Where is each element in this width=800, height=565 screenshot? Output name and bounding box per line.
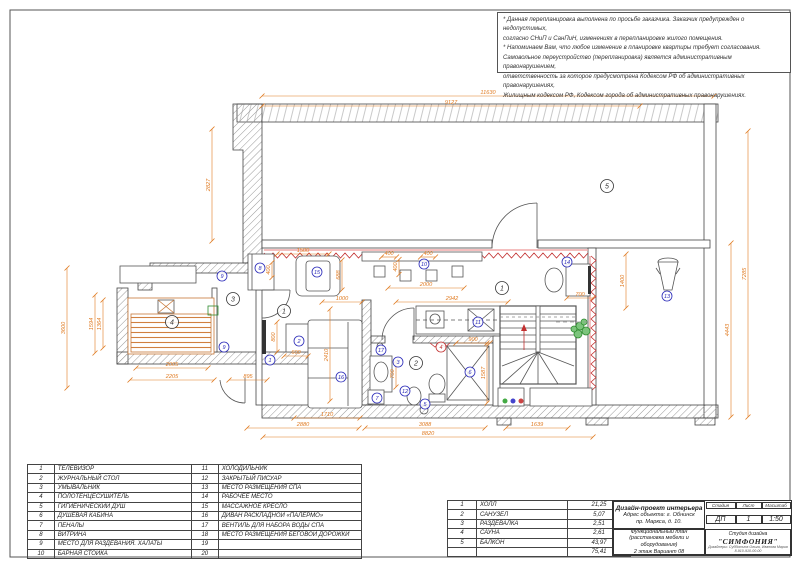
room-marker: 4 bbox=[166, 316, 179, 329]
svg-text:1500: 1500 bbox=[297, 248, 310, 254]
title-block-studio: Студия дизайна "СИМФОНИЯ" Дизайнеры: Суб… bbox=[705, 529, 791, 555]
legend-cell: ГИГИЕНИЧЕСКИЙ ДУШ bbox=[54, 502, 191, 511]
drawing-sheet: 1163091272827360015941364200522058954001… bbox=[0, 0, 800, 565]
wall-hall-balcony-1 bbox=[262, 240, 492, 248]
legend-cell: 12 bbox=[191, 474, 218, 483]
svg-text:2: 2 bbox=[413, 361, 418, 368]
bar-stool bbox=[400, 270, 411, 281]
room-cell: 3 bbox=[448, 519, 477, 528]
svg-text:1: 1 bbox=[268, 358, 271, 364]
note-line: Жилищным кодексом РФ, Кодексом города об… bbox=[503, 92, 785, 101]
dimension: 1639 bbox=[504, 422, 571, 430]
legend-cell: МЕСТО ДЛЯ РАЗДЕВАНИЯ. ХАЛАТЫ bbox=[54, 540, 191, 549]
svg-text:1710: 1710 bbox=[321, 412, 334, 418]
room-cell: 5 bbox=[448, 538, 477, 547]
svg-text:3600: 3600 bbox=[61, 321, 67, 334]
room-row: 2САНУЗЕЛ5,07 bbox=[448, 510, 631, 519]
legend-cell: ПЕНАЛЫ bbox=[54, 521, 191, 530]
legend-row: 7ПЕНАЛЫ17ВЕНТИЛЬ ДЛЯ НАБОРА ВОДЫ СПА bbox=[28, 521, 362, 530]
legend-cell: ДУШЕВАЯ КАБИНА bbox=[54, 511, 191, 520]
svg-text:2000: 2000 bbox=[419, 282, 433, 288]
wall-tab bbox=[695, 418, 715, 425]
dimension: 2942 bbox=[394, 296, 511, 304]
room-marker: 2 bbox=[410, 357, 423, 370]
svg-text:700: 700 bbox=[390, 368, 396, 378]
item-marker: 10 bbox=[419, 259, 429, 269]
svg-text:1364: 1364 bbox=[97, 318, 103, 330]
washbasin-unit bbox=[370, 356, 392, 392]
item-marker: 17 bbox=[376, 345, 386, 355]
svg-text:1587: 1587 bbox=[481, 366, 487, 379]
project-address-2: пр. Маркса, д. 10. bbox=[636, 519, 682, 526]
legend-cell: МЕСТО РАЗМЕЩЕНИЯ СПА bbox=[218, 483, 361, 492]
svg-text:3: 3 bbox=[231, 297, 235, 304]
svg-text:4: 4 bbox=[439, 345, 442, 351]
legend-cell: 2 bbox=[28, 474, 55, 483]
room-cell: 2 bbox=[448, 510, 477, 519]
bar-stool bbox=[426, 270, 437, 281]
item-marker: 16 bbox=[336, 372, 346, 382]
room-cell: БАЛКОН bbox=[477, 538, 568, 547]
svg-text:12: 12 bbox=[402, 389, 408, 395]
item-marker: 2 bbox=[294, 336, 304, 346]
wall-bath-top-1 bbox=[371, 336, 385, 343]
legend-cell: 11 bbox=[191, 465, 218, 474]
wall-tab bbox=[586, 418, 608, 425]
room-cell: САНУЗЕЛ bbox=[477, 510, 568, 519]
plan-name-3: 2 этаж Вариант 08 bbox=[634, 549, 684, 555]
legend-cell: УМЫВАЛЬНИК bbox=[54, 483, 191, 492]
stage-label: Стадия bbox=[706, 502, 736, 509]
svg-text:4443: 4443 bbox=[725, 323, 731, 336]
item-marker: 8 bbox=[255, 263, 265, 273]
svg-text:15: 15 bbox=[314, 270, 321, 276]
equipment-box bbox=[530, 388, 592, 406]
legend-cell bbox=[218, 540, 361, 549]
legend-table: 1ТЕЛЕВИЗОР11ХОЛОДИЛЬНИК2ЖУРНАЛЬНЫЙ СТОЛ1… bbox=[27, 464, 362, 559]
wall-hall-left bbox=[256, 290, 262, 405]
item-marker: 12 bbox=[400, 386, 410, 396]
legend-cell: 6 bbox=[28, 511, 55, 520]
legend-cell: 1 bbox=[28, 465, 55, 474]
svg-text:600: 600 bbox=[291, 350, 301, 356]
sofa bbox=[308, 320, 362, 408]
stage-value: ДП bbox=[706, 515, 736, 524]
dimension: 2827 bbox=[206, 127, 214, 244]
svg-text:400: 400 bbox=[423, 251, 433, 257]
legend-cell: ВИТРИНА bbox=[54, 530, 191, 539]
svg-text:2880: 2880 bbox=[296, 422, 310, 428]
svg-text:5: 5 bbox=[605, 184, 609, 191]
desk bbox=[566, 264, 590, 296]
legend-cell: ЖУРНАЛЬНЫЙ СТОЛ bbox=[54, 474, 191, 483]
dimension: 4443 bbox=[725, 241, 733, 420]
item-marker-red: 4 bbox=[436, 342, 446, 352]
svg-text:700: 700 bbox=[575, 292, 585, 298]
svg-text:4: 4 bbox=[170, 320, 174, 327]
svg-text:1594: 1594 bbox=[89, 318, 95, 330]
wall-left-pier bbox=[233, 104, 262, 263]
legend-cell: ХОЛОДИЛЬНИК bbox=[218, 465, 361, 474]
dimension: 8820 bbox=[261, 431, 596, 439]
legend-cell: БАРНАЯ СТОЙКА bbox=[54, 549, 191, 558]
tv bbox=[262, 320, 266, 354]
svg-text:16: 16 bbox=[338, 375, 345, 381]
plan-name-2: (расстановка мебели и оборудования) bbox=[614, 535, 704, 549]
svg-text:3088: 3088 bbox=[419, 422, 432, 428]
office-chair bbox=[545, 268, 563, 292]
legend-cell: 18 bbox=[191, 530, 218, 539]
item-marker: 13 bbox=[662, 291, 672, 301]
legend-row: 6ДУШЕВАЯ КАБИНА16ДИВАН РАСКЛАДНОЙ «ПАЛЕР… bbox=[28, 511, 362, 520]
title-block-plan-name: Функциональный план (расстановка мебели … bbox=[613, 529, 705, 555]
spa-vessel bbox=[656, 258, 680, 290]
note-line: ответственность за которое предусмотрена… bbox=[503, 73, 785, 92]
legend-cell: 16 bbox=[191, 511, 218, 520]
bar-stool bbox=[452, 266, 463, 277]
room-marker: 3 bbox=[227, 293, 240, 306]
title-block: Дизайн-проект интерьера Адрес объекта: г… bbox=[612, 500, 792, 556]
room-row: 4САУНА2,61 bbox=[448, 529, 631, 538]
legend-cell: ПОЛОТЕНЦЕСУШИТЕЛЬ bbox=[54, 493, 191, 502]
legend-cell: 5 bbox=[28, 502, 55, 511]
legend-cell: 10 bbox=[28, 549, 55, 558]
svg-text:900: 900 bbox=[468, 337, 478, 343]
svg-text:2942: 2942 bbox=[445, 296, 459, 302]
room-row: 1ХОЛЛ21,25 bbox=[448, 501, 631, 510]
item-marker: 3 bbox=[393, 357, 403, 367]
svg-text:10: 10 bbox=[421, 262, 428, 268]
legend-cell: ДИВАН РАСКЛАДНОЙ «ПАЛЕРМО» bbox=[218, 511, 361, 520]
wall-tab bbox=[497, 418, 511, 425]
svg-text:688: 688 bbox=[336, 269, 342, 279]
svg-text:9: 9 bbox=[220, 274, 223, 280]
svg-text:800: 800 bbox=[271, 331, 277, 341]
svg-text:1: 1 bbox=[500, 286, 504, 293]
item-marker: 6 bbox=[465, 367, 475, 377]
legend-cell: ТЕЛЕВИЗОР bbox=[54, 465, 191, 474]
legend-cell: 9 bbox=[28, 540, 55, 549]
dimension: 1400 bbox=[620, 252, 628, 311]
toilet bbox=[429, 374, 445, 394]
sheet-label: Лист bbox=[736, 502, 762, 509]
note-line: согласно СНиП и СанПиН, изменениях в пер… bbox=[503, 35, 785, 44]
legend-cell: РАБОЧЕЕ МЕСТО bbox=[218, 493, 361, 502]
item-marker: 11 bbox=[473, 317, 483, 327]
svg-text:1400: 1400 bbox=[620, 274, 626, 287]
project-address-1: Адрес объекта: г. Обнинск bbox=[623, 512, 695, 519]
room-cell bbox=[477, 547, 568, 556]
dimension: 3088 bbox=[363, 422, 488, 430]
legend-cell: 4 bbox=[28, 493, 55, 502]
item-marker: 9 bbox=[217, 271, 227, 281]
dimension: 2880 bbox=[245, 422, 362, 430]
svg-text:7285: 7285 bbox=[742, 267, 748, 280]
legend-row: 2ЖУРНАЛЬНЫЙ СТОЛ12ЗАКРЫТЫЙ ПИСУАР bbox=[28, 474, 362, 483]
rooms-table: 1ХОЛЛ21,252САНУЗЕЛ5,073РАЗДЕВАЛКА2,514СА… bbox=[447, 500, 631, 557]
svg-text:13: 13 bbox=[664, 294, 671, 300]
svg-text:11630: 11630 bbox=[480, 90, 496, 96]
room-row: 5БАЛКОН43,97 bbox=[448, 538, 631, 547]
room-cell bbox=[448, 547, 477, 556]
title-block-project: Дизайн-проект интерьера Адрес объекта: г… bbox=[613, 501, 705, 529]
legend-cell: 14 bbox=[191, 493, 218, 502]
room-cell: 4 bbox=[448, 529, 477, 538]
wall-top bbox=[237, 104, 718, 122]
notes-text: * Данная перепланировка выполнена по про… bbox=[503, 16, 785, 101]
dimension: 2205 bbox=[128, 374, 217, 382]
room-cell: ХОЛЛ bbox=[477, 501, 568, 510]
legend-row: 4ПОЛОТЕНЦЕСУШИТЕЛЬ14РАБОЧЕЕ МЕСТО bbox=[28, 493, 362, 502]
note-line: * Напоминаем Вам, что любое изменение в … bbox=[503, 44, 785, 53]
legend-row: 8ВИТРИНА18МЕСТО РАЗМЕЩЕНИЯ БЕГОВОЙ ДОРОЖ… bbox=[28, 530, 362, 539]
room-cell: РАЗДЕВАЛКА bbox=[477, 519, 568, 528]
room-marker: 1 bbox=[496, 282, 509, 295]
legend-cell: 15 bbox=[191, 502, 218, 511]
item-marker: 15 bbox=[312, 267, 322, 277]
walls-layer bbox=[117, 104, 718, 425]
legend-cell: 13 bbox=[191, 483, 218, 492]
legend-cell: 17 bbox=[191, 521, 218, 530]
wall-right bbox=[704, 104, 716, 418]
note-line: Самовольное переустройство (перепланиров… bbox=[503, 54, 785, 73]
svg-text:17: 17 bbox=[378, 348, 385, 354]
wall-bath-top-2 bbox=[413, 336, 495, 343]
scale-value: 1:50 bbox=[762, 515, 791, 524]
studio-phone: 8-910-910-00-00 bbox=[735, 550, 762, 554]
svg-text:9127: 9127 bbox=[445, 100, 458, 106]
legend-cell bbox=[218, 549, 361, 558]
legend-cell: ЗАКРЫТЫЙ ПИСУАР bbox=[218, 474, 361, 483]
razd-shelf bbox=[120, 266, 196, 283]
svg-text:8820: 8820 bbox=[422, 431, 435, 437]
counter-block bbox=[416, 306, 504, 334]
svg-text:1000: 1000 bbox=[336, 296, 349, 302]
svg-text:11: 11 bbox=[475, 320, 481, 326]
sheet-value: 1 bbox=[736, 515, 762, 524]
dimension: 7285 bbox=[742, 129, 750, 420]
legend-row: 3УМЫВАЛЬНИК13МЕСТО РАЗМЕЩЕНИЯ СПА bbox=[28, 483, 362, 492]
room-marker: 5 bbox=[601, 180, 614, 193]
legend-cell: МАССАЖНОЕ КРЕСЛО bbox=[218, 502, 361, 511]
item-marker: 1 bbox=[265, 355, 275, 365]
title-block-stage-grid: Стадия Лист Масштаб ДП 1 1:50 bbox=[705, 501, 791, 529]
svg-text:2410: 2410 bbox=[324, 348, 330, 362]
scale-label: Масштаб bbox=[762, 502, 791, 509]
bar-stool bbox=[374, 266, 385, 277]
legend-row: 5ГИГИЕНИЧЕСКИЙ ДУШ15МАССАЖНОЕ КРЕСЛО bbox=[28, 502, 362, 511]
dimension: 1000 bbox=[320, 296, 365, 304]
dimension: 800 bbox=[271, 320, 279, 355]
room-marker: 1 bbox=[278, 305, 291, 318]
item-marker: 14 bbox=[562, 257, 572, 267]
legend-cell: ВЕНТИЛЬ ДЛЯ НАБОРА ВОДЫ СПА bbox=[218, 521, 361, 530]
staircase bbox=[500, 306, 576, 384]
dimension: 1364 bbox=[97, 298, 105, 351]
svg-text:1639: 1639 bbox=[531, 422, 543, 428]
svg-text:2005: 2005 bbox=[165, 362, 179, 368]
item-marker: 5 bbox=[420, 399, 430, 409]
svg-text:400: 400 bbox=[393, 261, 399, 271]
svg-text:400: 400 bbox=[266, 264, 272, 274]
room-row: 3РАЗДЕВАЛКА2,51 bbox=[448, 519, 631, 528]
svg-text:9: 9 bbox=[222, 345, 225, 351]
notes-box: * Данная перепланировка выполнена по про… bbox=[497, 12, 791, 73]
legend-cell: 8 bbox=[28, 530, 55, 539]
legend-row: 10БАРНАЯ СТОЙКА20 bbox=[28, 549, 362, 558]
legend-cell: МЕСТО РАЗМЕЩЕНИЯ БЕГОВОЙ ДОРОЖКИ bbox=[218, 530, 361, 539]
project-title: Дизайн-проект интерьера bbox=[616, 505, 703, 512]
item-marker: 9 bbox=[219, 342, 229, 352]
legend-cell: 7 bbox=[28, 521, 55, 530]
svg-text:2827: 2827 bbox=[206, 178, 212, 192]
svg-text:2: 2 bbox=[296, 339, 300, 345]
dimension: 3600 bbox=[61, 266, 69, 391]
wall-hall-balcony-2 bbox=[538, 240, 710, 248]
room-row: 75,41 bbox=[448, 547, 631, 556]
legend-row: 1ТЕЛЕВИЗОР11ХОЛОДИЛЬНИК bbox=[28, 465, 362, 474]
room-cell: САУНА bbox=[477, 529, 568, 538]
legend-cell: 3 bbox=[28, 483, 55, 492]
legend-cell: 20 bbox=[191, 549, 218, 558]
svg-text:400: 400 bbox=[384, 251, 394, 257]
dimension: 2000 bbox=[386, 282, 467, 290]
monitor bbox=[588, 266, 591, 294]
room-cell: 1 bbox=[448, 501, 477, 510]
item-marker: 7 bbox=[372, 393, 382, 403]
legend-cell: 19 bbox=[191, 540, 218, 549]
svg-text:2205: 2205 bbox=[165, 374, 179, 380]
svg-text:1: 1 bbox=[282, 309, 286, 316]
legend-row: 9МЕСТО ДЛЯ РАЗДЕВАНИЯ. ХАЛАТЫ19 bbox=[28, 540, 362, 549]
svg-text:895: 895 bbox=[243, 374, 253, 380]
note-line: * Данная перепланировка выполнена по про… bbox=[503, 16, 785, 35]
svg-text:14: 14 bbox=[564, 260, 570, 266]
dimension: 895 bbox=[227, 374, 270, 382]
